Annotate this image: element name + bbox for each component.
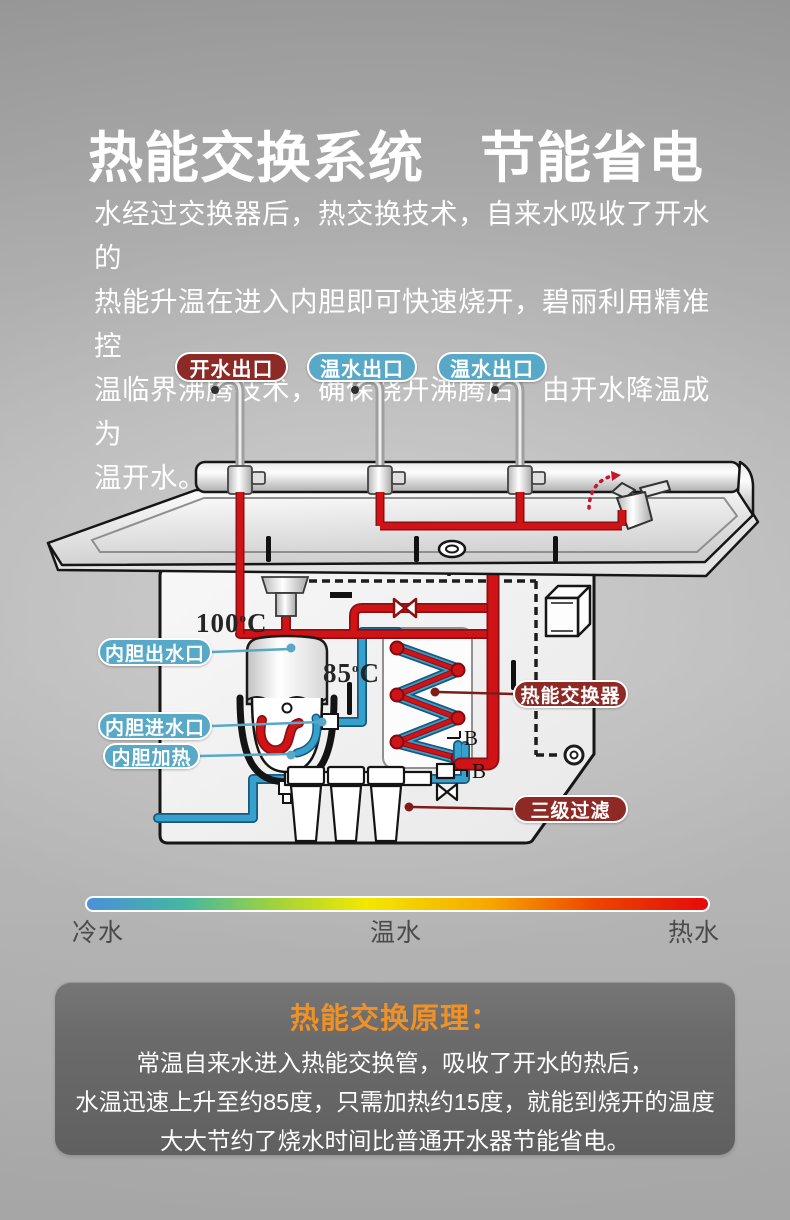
system-diagram: B B <box>0 340 790 885</box>
principle-line-2: 水温迅速上升至约85度，只需加热约15度，就能到烧开的温度 <box>55 1083 735 1122</box>
power-plug-icon <box>565 746 583 764</box>
legend-warm: 温水 <box>370 913 422 949</box>
temp-boiling-unit: C <box>247 608 268 638</box>
temp-warm-value: 85 <box>323 658 352 688</box>
label-tank-heater: 内胆加热 <box>103 743 200 769</box>
temp-warm: 85oC <box>323 658 380 689</box>
connection-mark-b1: B <box>464 726 478 750</box>
principle-line-1: 常温自来水进入热能交换管，吸收了开水的热后， <box>55 1044 735 1083</box>
machine-schematic: B B <box>0 340 790 885</box>
label-tank-inlet: 内胆进水口 <box>98 712 212 740</box>
degree-mark: o <box>352 660 360 675</box>
degree-mark: o <box>240 610 248 625</box>
label-heat-exchanger: 热能交换器 <box>513 680 628 708</box>
label-boiling-outlet: 开水出口 <box>175 352 288 382</box>
label-filter: 三级过滤 <box>513 795 628 823</box>
legend-cold: 冷水 <box>72 913 124 949</box>
temp-boiling-value: 100 <box>196 608 240 638</box>
temperature-legend: 冷水 温水 热水 <box>72 913 720 949</box>
label-warm-outlet-2: 温水出口 <box>437 352 547 382</box>
label-warm-outlet-1: 温水出口 <box>307 352 417 382</box>
sink-drain <box>439 541 465 557</box>
temperature-gradient-bar <box>85 896 710 912</box>
legend-hot: 热水 <box>668 913 720 949</box>
temp-boiling: 100oC <box>196 608 268 639</box>
connection-mark-b2: B <box>472 759 486 783</box>
valve-dash-mark <box>330 592 352 598</box>
poster: 热能交换系统 节能省电 水经过交换器后，热交换技术，自来水吸收了开水的 热能升温… <box>0 0 790 1220</box>
principle-line-3: 大大节约了烧水时间比普通开水器节能省电。 <box>55 1122 735 1161</box>
label-tank-outlet: 内胆出水口 <box>98 638 212 666</box>
electrical-box <box>546 586 590 636</box>
page-title: 热能交换系统 节能省电 <box>88 113 748 193</box>
principle-body: 常温自来水进入热能交换管，吸收了开水的热后， 水温迅速上升至约85度，只需加热约… <box>55 1044 735 1161</box>
drain-valve-body <box>437 764 454 778</box>
principle-title: 热能交换原理： <box>55 995 735 1037</box>
principle-box: 热能交换原理： 常温自来水进入热能交换管，吸收了开水的热后， 水温迅速上升至约8… <box>55 982 735 1155</box>
temp-warm-unit: C <box>360 658 381 688</box>
